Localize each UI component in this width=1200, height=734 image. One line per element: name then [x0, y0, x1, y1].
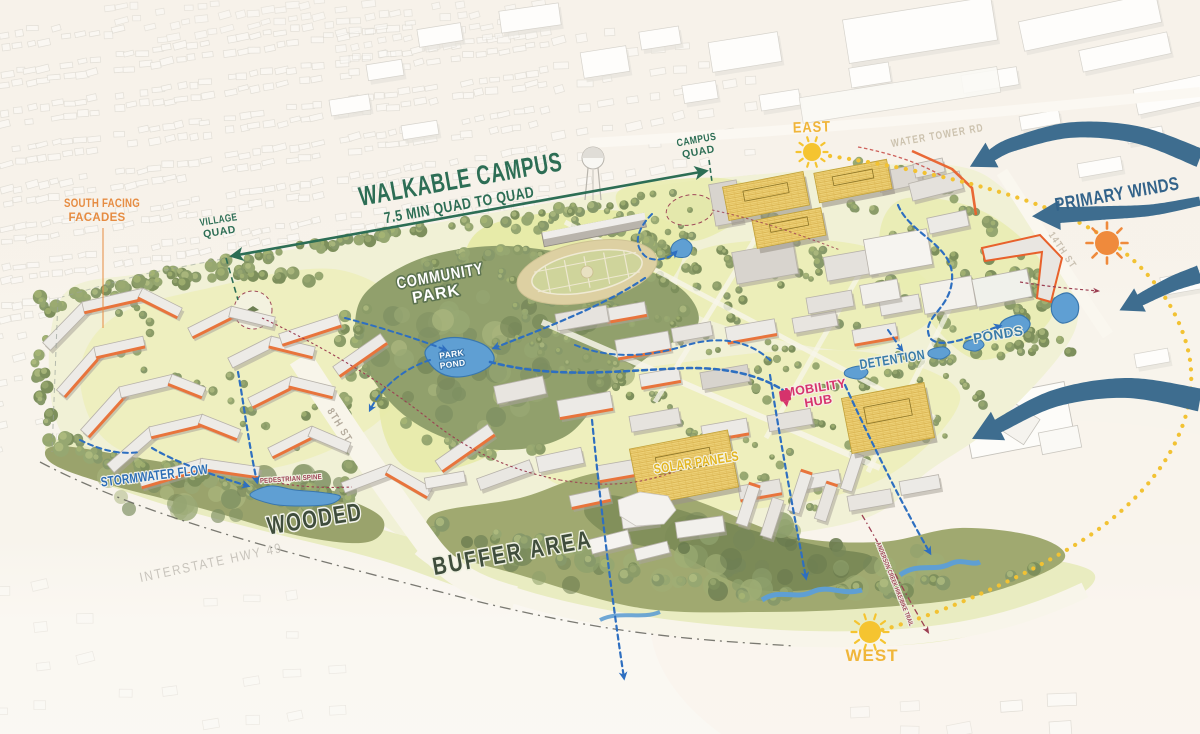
- svg-text:SOUTH FACING: SOUTH FACING: [64, 198, 140, 210]
- svg-text:WEST: WEST: [845, 646, 898, 665]
- svg-text:EAST: EAST: [793, 118, 832, 136]
- svg-text:FACADES: FACADES: [68, 212, 125, 224]
